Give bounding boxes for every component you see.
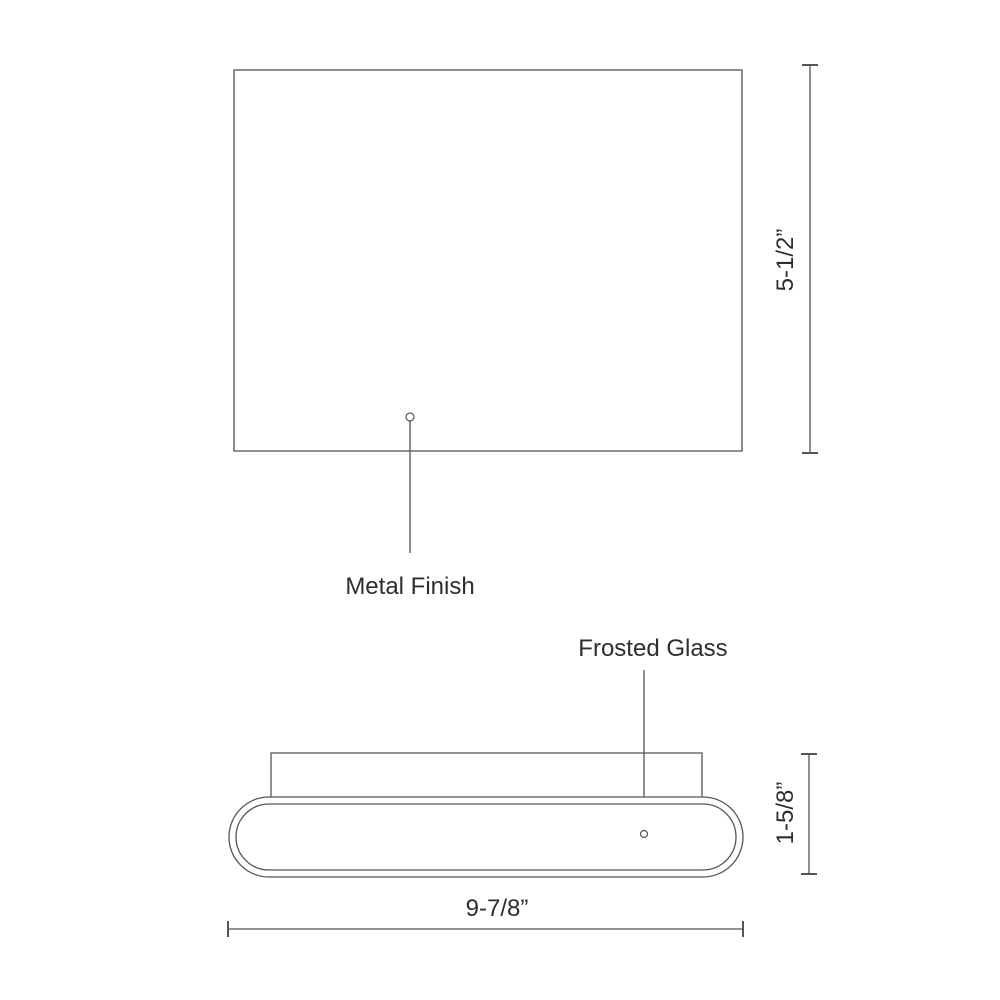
lens-outline-outer [229, 797, 743, 877]
frosted-glass-label: Frosted Glass [578, 635, 727, 662]
diagram-canvas: Metal Finish 5-1/2” Frosted Glass 1-5/8”… [0, 0, 1000, 1000]
frosted-glass-marker-dot [641, 831, 648, 838]
front-view-outline [234, 70, 742, 451]
width-dimension-label: 9-7/8” [466, 895, 529, 922]
backplate-outline [271, 753, 702, 798]
metal-finish-marker-dot [406, 413, 414, 421]
profile-height-dimension-label: 1-5/8” [772, 782, 799, 845]
drawing-page: Metal Finish 5-1/2” Frosted Glass 1-5/8”… [0, 0, 1000, 1000]
metal-finish-label: Metal Finish [345, 573, 474, 600]
front-height-dimension-label: 5-1/2” [772, 229, 799, 292]
